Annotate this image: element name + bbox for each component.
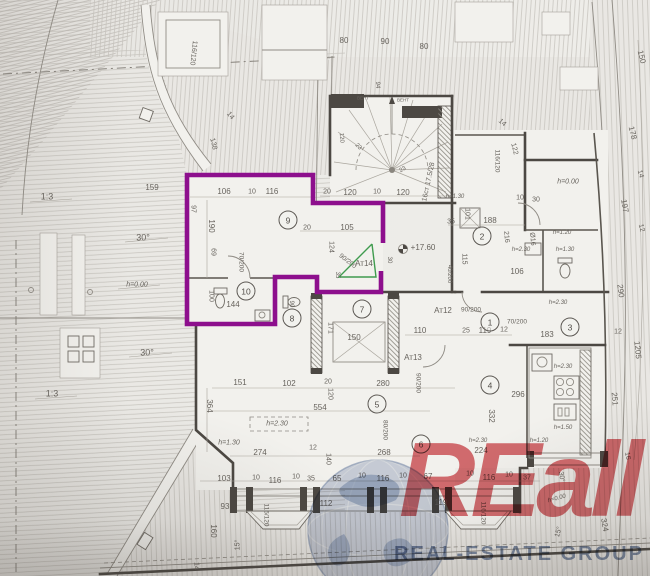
plan-label: 296: [511, 391, 524, 399]
plan-label: 70/200: [507, 320, 527, 327]
plan-label: 14: [192, 562, 199, 570]
plan-label: Ат13: [404, 354, 422, 362]
plan-label: h=0.00: [557, 178, 579, 185]
room-number-2: 2: [473, 227, 492, 246]
plan-label: 116/120: [262, 503, 269, 526]
plan-label: 90: [381, 38, 390, 46]
plan-label: 35: [447, 218, 455, 225]
plan-label: 120: [396, 189, 409, 197]
plan-label: 159: [145, 184, 158, 192]
plan-label: 554: [313, 404, 326, 412]
plan-label: 100: [207, 290, 214, 302]
plan-label: 110: [414, 327, 427, 335]
plan-label: 93: [221, 503, 230, 511]
plan-label: 274: [253, 449, 266, 457]
plan-label: 120: [337, 133, 344, 144]
plan-label: ВЕНТ: [397, 99, 409, 104]
plan-label: 12: [500, 326, 508, 333]
plan-label: 25: [462, 327, 470, 334]
plan-label: 290: [615, 284, 625, 298]
plan-label: 124: [327, 241, 334, 253]
plan-label: 178: [626, 126, 637, 141]
plan-label: 90/200: [461, 308, 481, 315]
plan-label: 10: [373, 188, 381, 195]
room-number-7: 7: [353, 300, 372, 319]
plan-label: 80/200: [381, 420, 388, 440]
plan-label: 35: [334, 272, 340, 279]
plan-label: 40/200: [446, 265, 452, 283]
floor-plan-scan: 116/120809080150178ВЕНТВЕНТ9414138141221…: [0, 0, 650, 576]
plan-label: 30: [386, 257, 392, 264]
plan-label: 97: [189, 205, 196, 213]
plan-label: h=1.20: [553, 230, 572, 236]
plan-label: 70/200: [237, 252, 244, 272]
room-number-10: 10: [237, 282, 256, 301]
plan-label: 116: [269, 477, 282, 485]
plan-label: 10: [248, 188, 256, 195]
plan-label: 120: [343, 189, 356, 197]
plan-label: 15°: [234, 540, 241, 551]
plan-label: 197: [619, 199, 630, 214]
plan-label: ВЕНТ: [357, 97, 369, 102]
room-number-8: 8: [283, 309, 302, 328]
plan-label: 190: [207, 219, 215, 232]
plan-label: 102: [282, 380, 295, 388]
room-number-4: 4: [481, 376, 500, 395]
plan-label: h=2.30: [266, 420, 288, 427]
plan-label: 1:3: [46, 389, 59, 398]
plan-label: h=1.30: [218, 439, 240, 446]
plan-label: 1205: [632, 341, 642, 359]
plan-label: 188: [483, 217, 496, 225]
watermark-tagline-text: REAL-ESTATE GROUP: [394, 543, 644, 566]
plan-label: 10: [516, 194, 524, 201]
plan-label: 10: [252, 474, 260, 481]
room-number-3: 3: [561, 318, 580, 337]
plan-label: h=2.30: [549, 300, 568, 306]
plan-label: 30°: [136, 233, 150, 242]
watermark-brand-text: REall: [399, 427, 639, 533]
room-number-1: 1: [481, 313, 500, 332]
plan-label: Ø16: [528, 232, 536, 246]
plan-label: h=2.30: [512, 247, 531, 253]
plan-label: 105: [340, 224, 353, 232]
plan-label: 160: [209, 524, 217, 537]
plan-label: 30: [532, 196, 540, 203]
plan-label: +17.60: [411, 244, 436, 252]
plan-label: 103: [217, 475, 230, 483]
plan-label: 90: [288, 301, 294, 308]
plan-label: 69: [209, 248, 216, 256]
plan-label: 116: [266, 188, 279, 196]
plan-label: Ат12: [434, 307, 452, 315]
plan-label: 106: [510, 268, 523, 276]
room-number-5: 5: [368, 395, 387, 414]
plan-label: 12: [614, 328, 622, 335]
plan-label: 80: [420, 43, 429, 51]
room-number-9: 9: [279, 211, 298, 230]
plan-label: 20: [323, 188, 331, 195]
plan-label: 251: [609, 392, 619, 406]
plan-label: 101: [463, 208, 470, 220]
plan-label: 150: [635, 50, 646, 65]
plan-label: 171: [326, 322, 333, 334]
plan-label: 183: [540, 331, 553, 339]
plan-label: 364: [205, 399, 213, 412]
plan-label: 14: [635, 169, 644, 178]
plan-label: 120: [326, 388, 333, 400]
plan-label: h=1.30: [446, 194, 465, 200]
plan-label: h=1.30: [556, 247, 575, 253]
plan-label: 116/120: [493, 149, 500, 172]
plan-label: 106: [217, 188, 230, 196]
plan-label: 115: [460, 253, 467, 264]
plan-label: h=2.30: [554, 364, 573, 370]
plan-label: 10: [292, 473, 300, 480]
plan-label: 20: [303, 224, 311, 231]
plan-label: 94: [374, 82, 380, 89]
plan-label: 144: [226, 301, 239, 309]
plan-label: Ат14: [355, 260, 373, 268]
plan-label: 80: [340, 37, 349, 45]
plan-label: 1:3: [41, 192, 54, 201]
plan-label: 151: [233, 379, 246, 387]
plan-label: h=0.00: [126, 281, 148, 288]
plan-label: 280: [376, 380, 389, 388]
plan-label: 30°: [140, 348, 154, 357]
plan-label: 12: [636, 223, 645, 232]
plan-label: 216: [502, 231, 510, 243]
plan-label: 150: [347, 334, 360, 342]
plan-label: 20: [324, 378, 332, 385]
plan-label: 90/200: [414, 373, 421, 393]
